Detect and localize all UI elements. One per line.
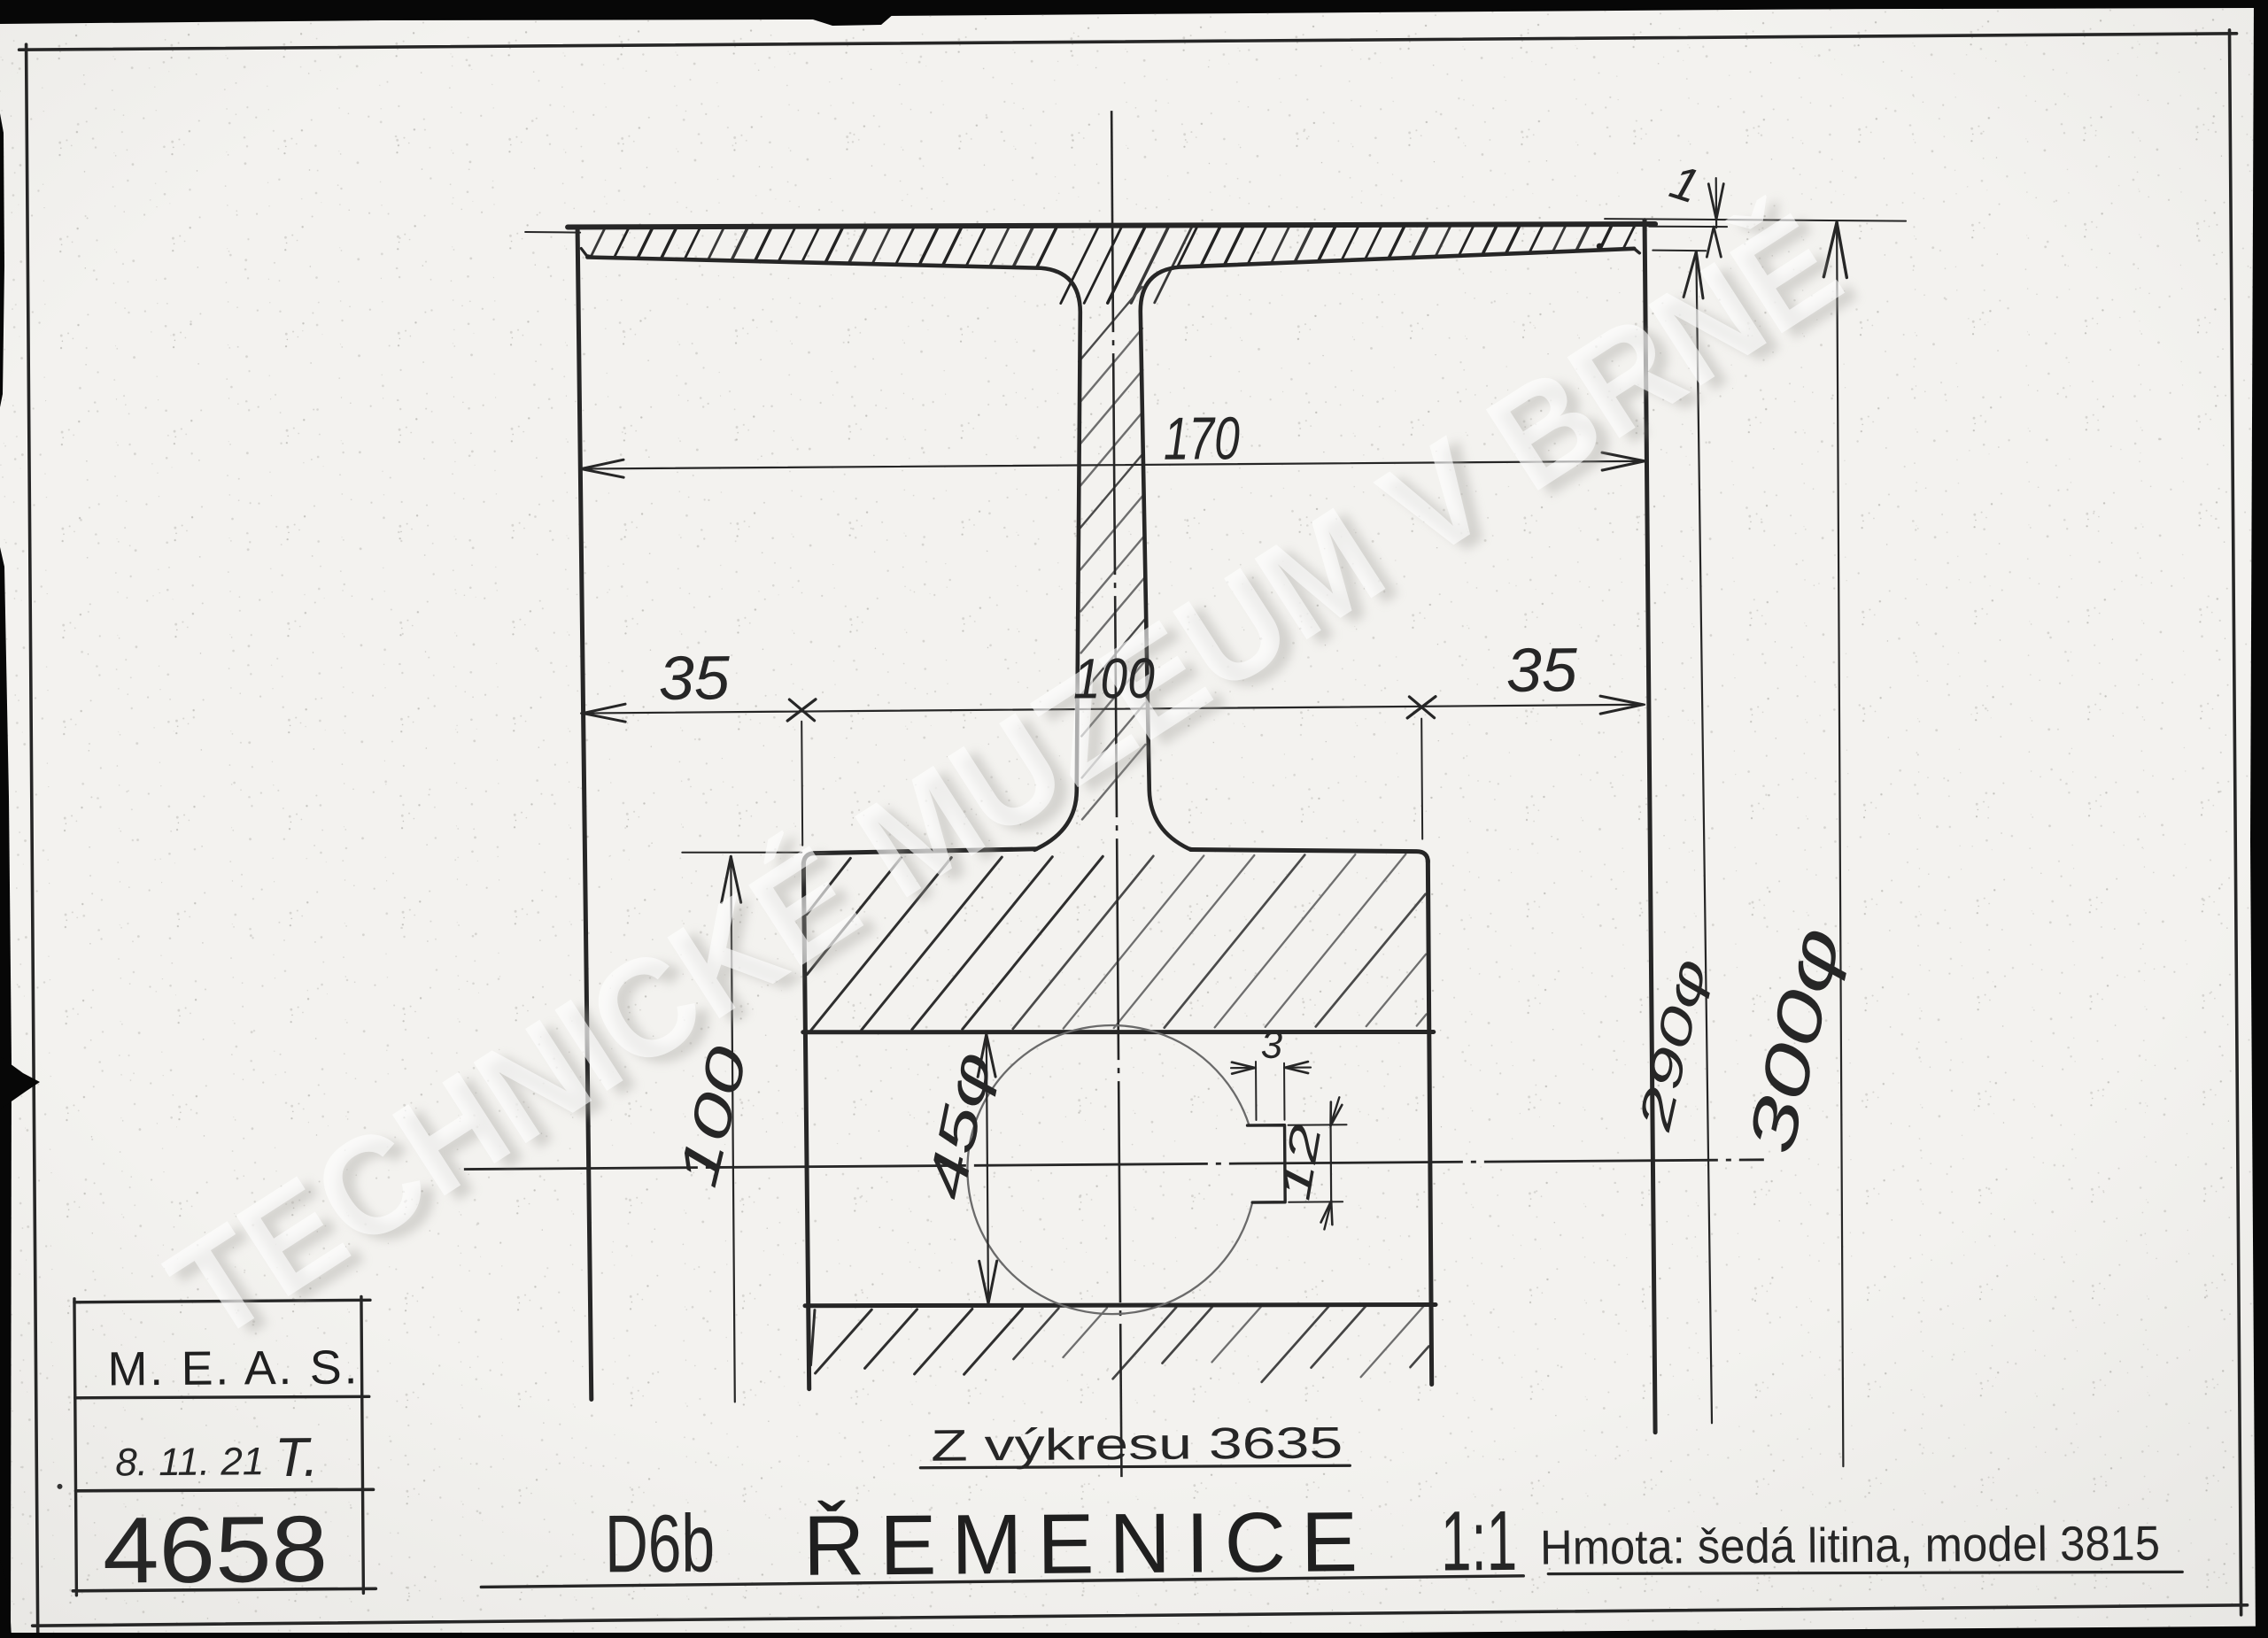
svg-text:M. E. A. S.: M. E. A. S.	[107, 1341, 357, 1395]
svg-text:35: 35	[1506, 635, 1578, 705]
svg-text:ŘEMENICE: ŘEMENICE	[803, 1495, 1358, 1594]
svg-text:8. 11. 21: 8. 11. 21	[115, 1440, 264, 1484]
svg-text:35: 35	[659, 643, 731, 713]
svg-text:3: 3	[1260, 1024, 1282, 1067]
svg-text:4658: 4658	[103, 1497, 329, 1603]
svg-text:D6b: D6b	[605, 1498, 716, 1589]
svg-text:100: 100	[1073, 646, 1156, 711]
svg-text:Z výkresu 3635: Z výkresu 3635	[931, 1418, 1343, 1470]
svg-text:Hmota: šedá litina, model 3815: Hmota: šedá litina, model 3815	[1540, 1516, 2160, 1575]
svg-text:T.: T.	[275, 1427, 319, 1488]
svg-text:170: 170	[1164, 405, 1241, 473]
svg-text:1:1: 1:1	[1441, 1494, 1518, 1589]
